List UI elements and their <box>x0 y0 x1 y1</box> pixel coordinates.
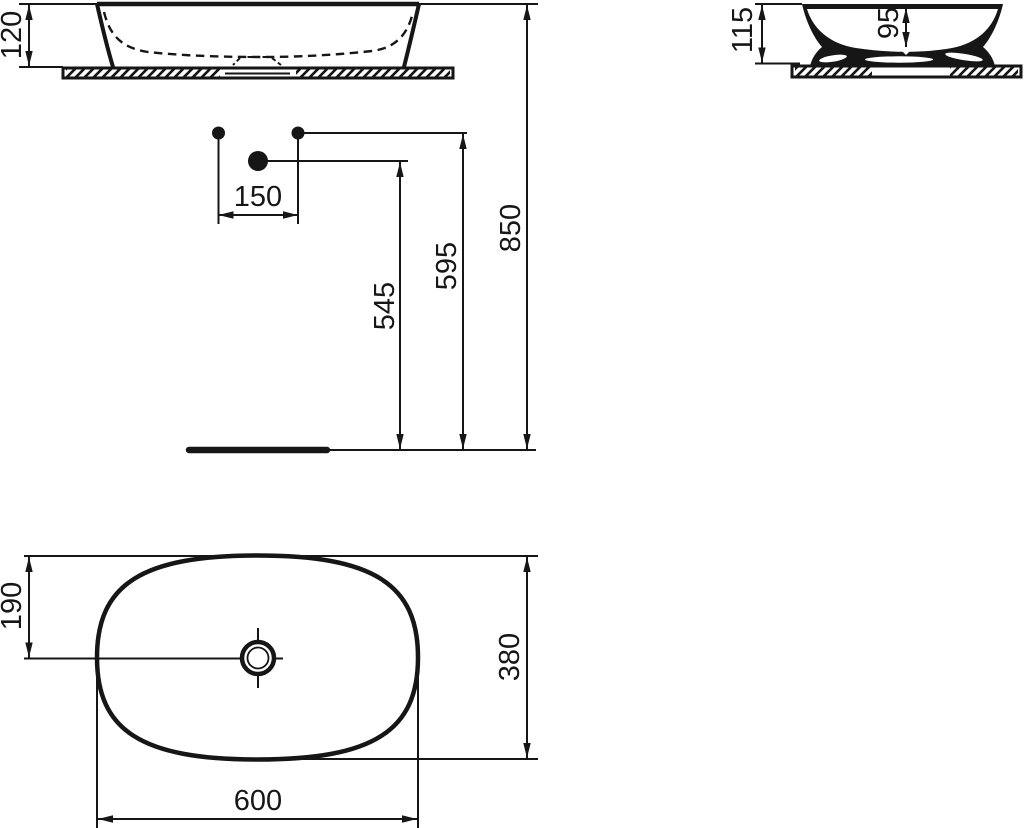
dim-label-height-high: 595 <box>431 242 463 290</box>
dim-label-hole-spacing: 150 <box>234 181 282 213</box>
front-elevation-view: 120 <box>0 4 538 78</box>
technical-drawing-canvas: 120 115 95 150 545 595 850 <box>0 0 1024 828</box>
dim-label-total-height: 115 <box>727 7 759 53</box>
dim-label-depth: 380 <box>494 633 526 681</box>
dim-label-bowl-depth: 95 <box>873 7 905 39</box>
bowl-hidden-contour <box>104 12 413 57</box>
dim-label-basin-height: 120 <box>0 11 28 59</box>
countertop-side-hatch-right <box>950 68 1018 76</box>
dim-label-width: 600 <box>234 785 282 817</box>
plan-view: 190 380 600 <box>0 556 538 828</box>
countertop-hatch-left <box>66 70 220 77</box>
fixture-point-left <box>212 127 225 140</box>
countertop-hatch-right <box>296 70 450 77</box>
technical-drawing-page: 120 115 95 150 545 595 850 <box>0 0 1024 828</box>
dim-label-height-low: 545 <box>369 282 401 330</box>
side-section-view: 115 95 <box>727 4 1021 77</box>
dim-label-drain-offset: 190 <box>0 582 28 630</box>
countertop-side-hatch-left <box>795 68 872 76</box>
basin-right-edge <box>404 4 419 67</box>
dim-label-rim-height: 850 <box>495 204 527 252</box>
drain-hidden-contour <box>233 57 281 65</box>
base-relief-center <box>865 56 933 62</box>
